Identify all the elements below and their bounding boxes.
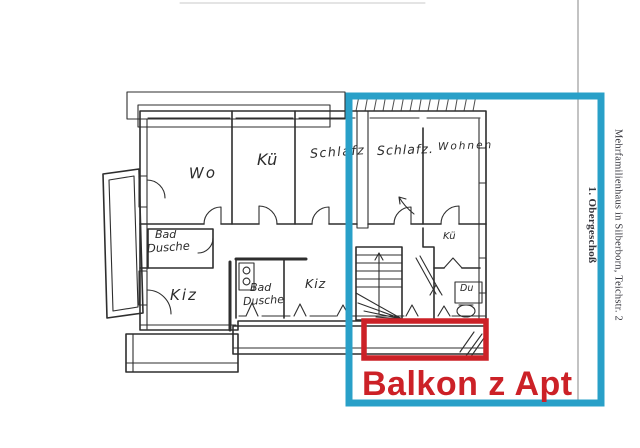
scanned-floorplan-page: Wo Kü Schlafz Schlafz. Wohnen Bad Dusche… <box>0 0 640 448</box>
balcony-highlight-box <box>364 321 486 358</box>
side-label-building: Mehrfamilienhaus in Silberborn, Teichstr… <box>613 129 624 321</box>
side-label-floor: 1. Obergeschoß <box>586 187 598 264</box>
balkon-annotation: Balkon z Apt <box>362 365 573 404</box>
